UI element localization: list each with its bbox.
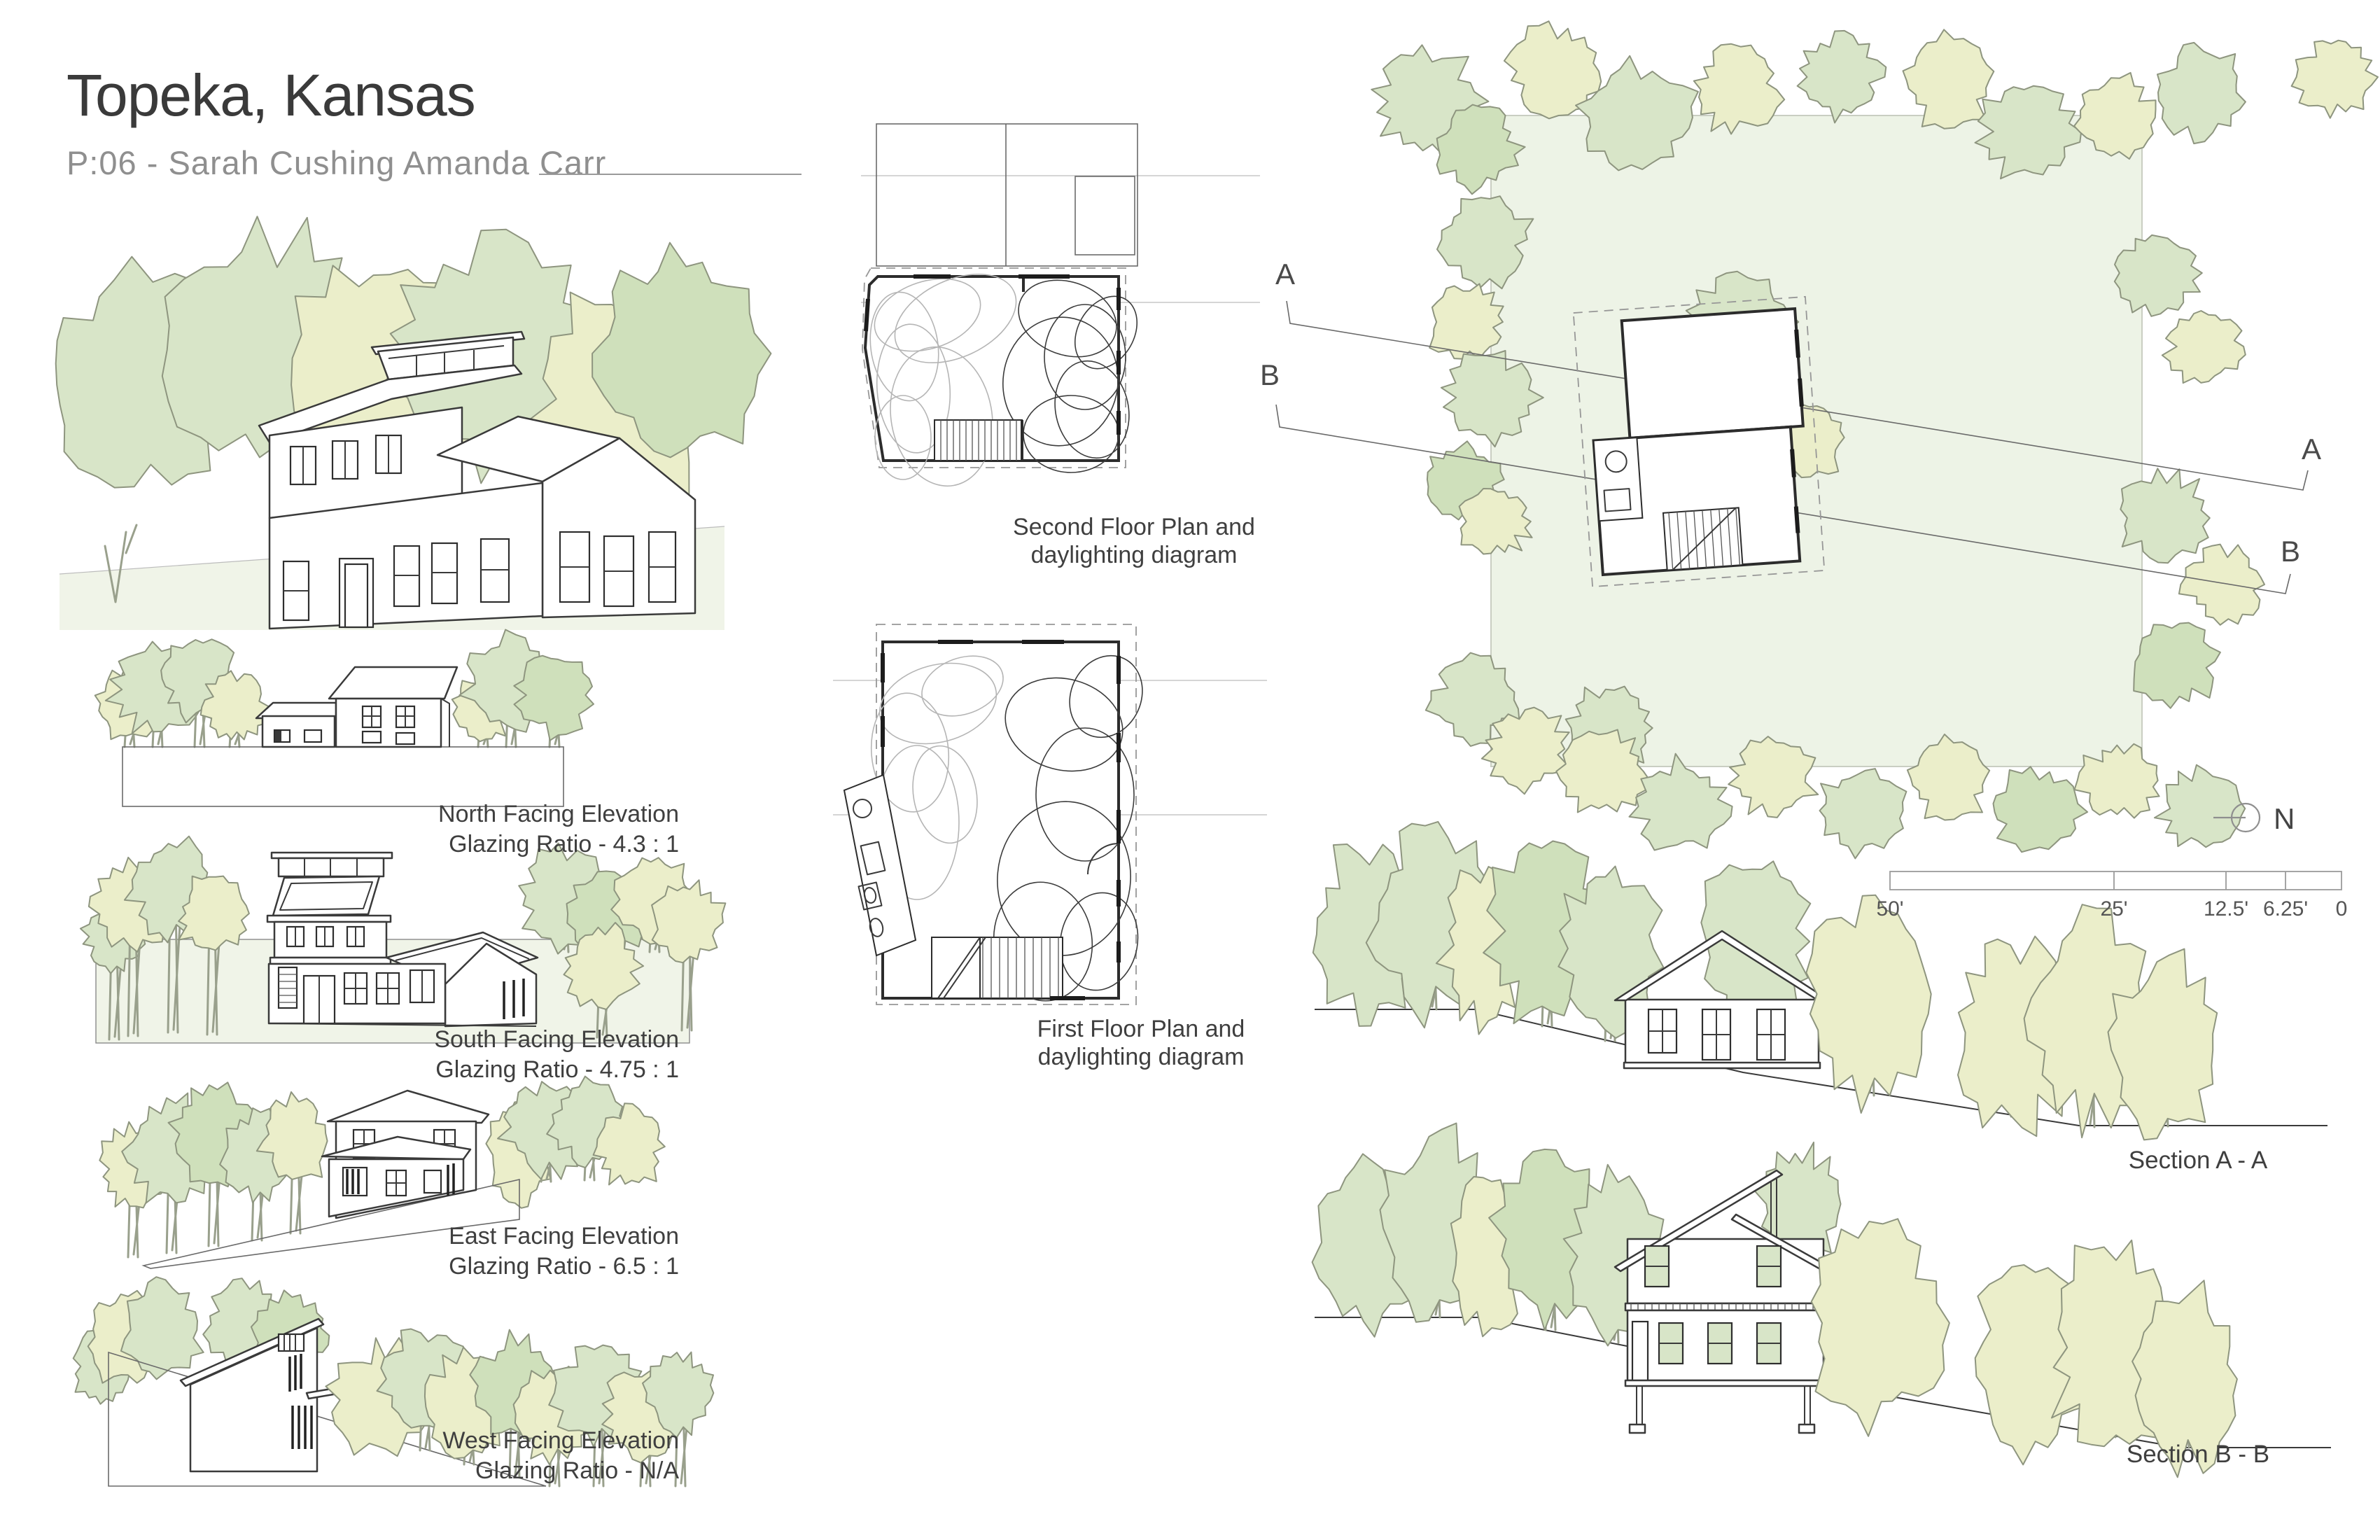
roof-outline: [876, 124, 1137, 266]
glazing-ratio: Glazing Ratio - 4.3 : 1: [385, 830, 679, 859]
plan-label-line1: First Floor Plan and: [987, 1015, 1295, 1043]
tree: [1806, 895, 1931, 1113]
grade-box: [122, 747, 563, 806]
south-elevation-label: South Facing Elevation Glazing Ratio - 4…: [385, 1025, 679, 1084]
presentation-board: Topeka, Kansas P:06 - Sarah Cushing Aman…: [0, 0, 2380, 1540]
scale-label-6-25: 6.25': [2254, 897, 2317, 921]
plan-label-line2: daylighting diagram: [987, 1043, 1295, 1071]
first-floor-plan-label: First Floor Plan and daylighting diagram: [987, 1015, 1295, 1071]
scale-label-0: 0: [2310, 897, 2373, 921]
east-elevation-label: East Facing Elevation Glazing Ratio - 6.…: [385, 1222, 679, 1281]
section-marker-a-left: A: [1271, 258, 1299, 291]
plan-label-line1: Second Floor Plan and: [980, 513, 1288, 541]
perspective-rendering: [59, 224, 724, 630]
house-east: [322, 1091, 489, 1218]
section-marker-b-right: B: [2276, 535, 2304, 568]
tree: [2179, 545, 2264, 625]
elevation-name: South Facing Elevation: [385, 1025, 679, 1054]
north-elevation: [91, 633, 595, 812]
scale-label-25: 25': [2082, 897, 2145, 921]
page-subtitle: P:06 - Sarah Cushing Amanda Carr: [66, 143, 606, 182]
section-b-label: Section B - B: [2086, 1441, 2310, 1469]
tree: [2162, 311, 2246, 383]
section-marker-b-left: B: [1256, 358, 1284, 392]
tree: [1903, 29, 1994, 128]
section-marker-a-right: A: [2297, 433, 2325, 466]
stair-window: [279, 967, 297, 1008]
tree: [2292, 41, 2378, 118]
stairs: [932, 937, 1063, 998]
glazing-ratio: Glazing Ratio - 6.5 : 1: [385, 1252, 679, 1281]
page-title: Topeka, Kansas: [66, 62, 475, 129]
door: [1632, 1322, 1648, 1380]
site-plan: [1253, 28, 2380, 938]
title-rule: [539, 174, 801, 175]
north-label: N: [2274, 802, 2295, 836]
first-floor-plan: [833, 612, 1267, 1015]
section-a-label: Section A - A: [2086, 1147, 2310, 1175]
elevation-name: East Facing Elevation: [385, 1222, 679, 1251]
section-b-drawing: [1309, 1148, 2338, 1484]
second-floor-plan-label: Second Floor Plan and daylighting diagra…: [980, 513, 1288, 569]
elevation-name: West Facing Elevation: [385, 1427, 679, 1455]
glazing-ratio: Glazing Ratio - N/A: [385, 1457, 679, 1485]
scale-label-50: 50': [1858, 897, 1921, 921]
glazing-ratio: Glazing Ratio - 4.75 : 1: [385, 1056, 679, 1084]
scale-label-12-5: 12.5': [2194, 897, 2257, 921]
tree: [2157, 43, 2246, 143]
west-elevation-label: West Facing Elevation Glazing Ratio - N/…: [385, 1427, 679, 1485]
elevation-name: North Facing Elevation: [385, 800, 679, 829]
house-north: [256, 667, 457, 747]
second-floor-plan: [861, 108, 1260, 535]
section-a-drawing: [1309, 826, 2338, 1155]
plan-label-line2: daylighting diagram: [980, 541, 1288, 569]
north-elevation-label: North Facing Elevation Glazing Ratio - 4…: [385, 800, 679, 859]
tree: [2134, 623, 2220, 708]
tree: [1798, 31, 1886, 123]
